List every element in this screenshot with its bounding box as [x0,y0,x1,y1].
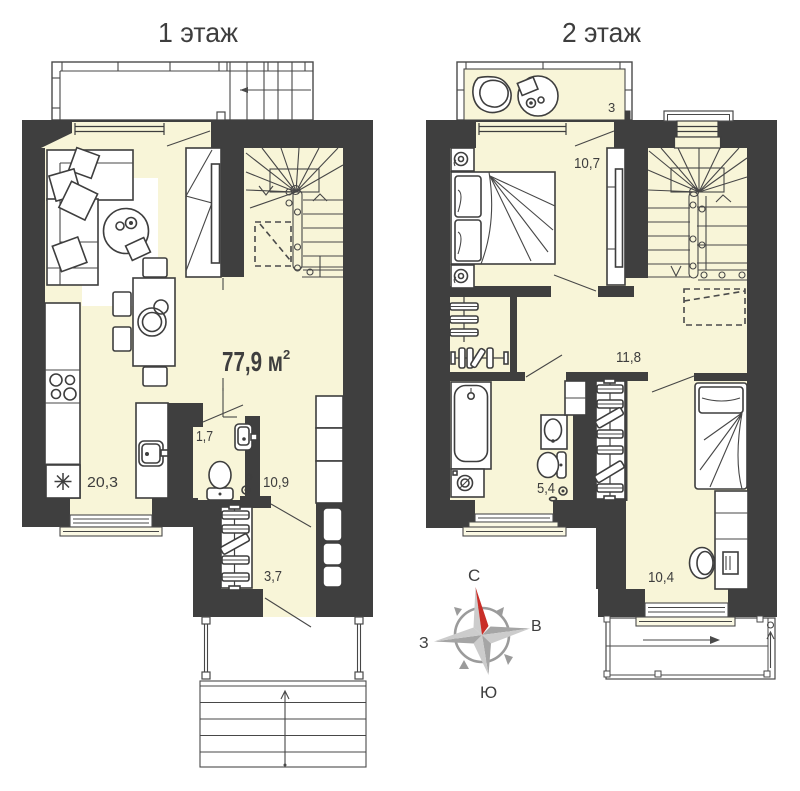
svg-text:З: З [419,635,429,652]
svg-text:С: С [468,566,480,585]
svg-text:10,4: 10,4 [648,569,674,586]
svg-text:1 этаж: 1 этаж [158,17,238,48]
svg-text:Ю: Ю [480,683,497,702]
svg-text:77,9 м: 77,9 м [222,346,283,377]
svg-text:1,7: 1,7 [196,428,213,445]
svg-text:2: 2 [283,347,290,362]
svg-text:10,9: 10,9 [263,474,289,491]
svg-text:В: В [531,618,542,635]
svg-text:3: 3 [608,100,615,115]
svg-text:20,3: 20,3 [87,474,118,491]
svg-text:5,4: 5,4 [537,480,555,497]
svg-text:10,7: 10,7 [574,155,600,172]
svg-text:2 этаж: 2 этаж [562,17,641,48]
svg-text:11,8: 11,8 [616,349,641,366]
svg-text:3,7: 3,7 [264,568,282,585]
